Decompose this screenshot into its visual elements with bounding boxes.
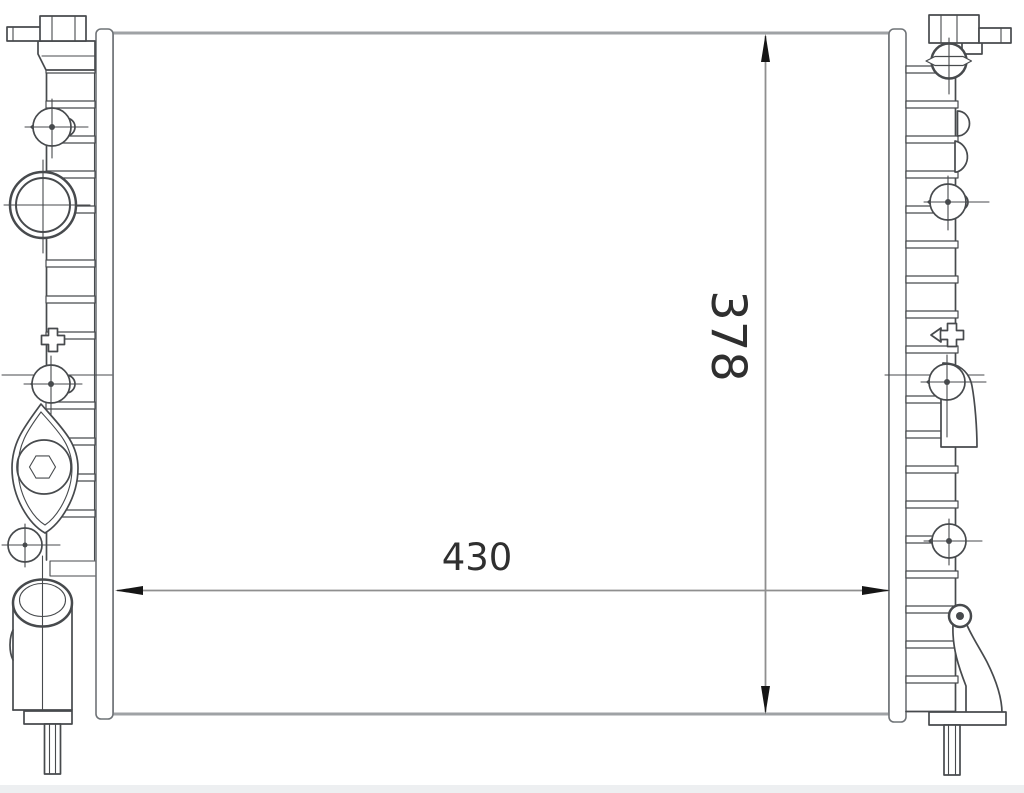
radiator-core [113,33,890,714]
overflow-pipe [7,27,42,41]
mount-center-dot [944,379,950,385]
dimension-label-height: 378 [700,290,756,382]
mount-center-dot [48,381,54,387]
mount-center-dot [946,538,952,544]
right-cross-bracket [931,324,964,347]
image-bottom-strip [0,785,1024,793]
outlet-ledge [50,561,95,576]
foot-outline [953,625,1002,713]
right-foot-bracket [929,605,1006,775]
foot-pivot-dot [956,612,964,620]
right-mount-pin [944,725,960,775]
bracket-cross [941,324,964,347]
radiator-technical-drawing: 378 430 [0,0,1024,793]
drawing-svg: 378 430 [0,0,1024,793]
outlet-pipe [10,556,72,774]
mount-center-dot [23,543,28,548]
dimension-label-width: 430 [442,536,513,579]
mount-center-dot [945,199,951,205]
filler-block [40,16,86,41]
foot-bar [929,712,1006,725]
left-core-strip [96,29,113,719]
outlet-flange [24,711,72,724]
side-bump-1 [958,111,970,136]
left-mount-pin [45,724,61,774]
bracket-arm [931,328,941,342]
right-lower-mount [924,519,982,565]
side-bump-2 [955,141,967,172]
fitting-pipe [979,28,1011,43]
fitting-block [929,15,979,43]
mount-center-dot [49,124,55,130]
filler-neck [7,16,95,70]
right-upper-mount [924,176,989,230]
